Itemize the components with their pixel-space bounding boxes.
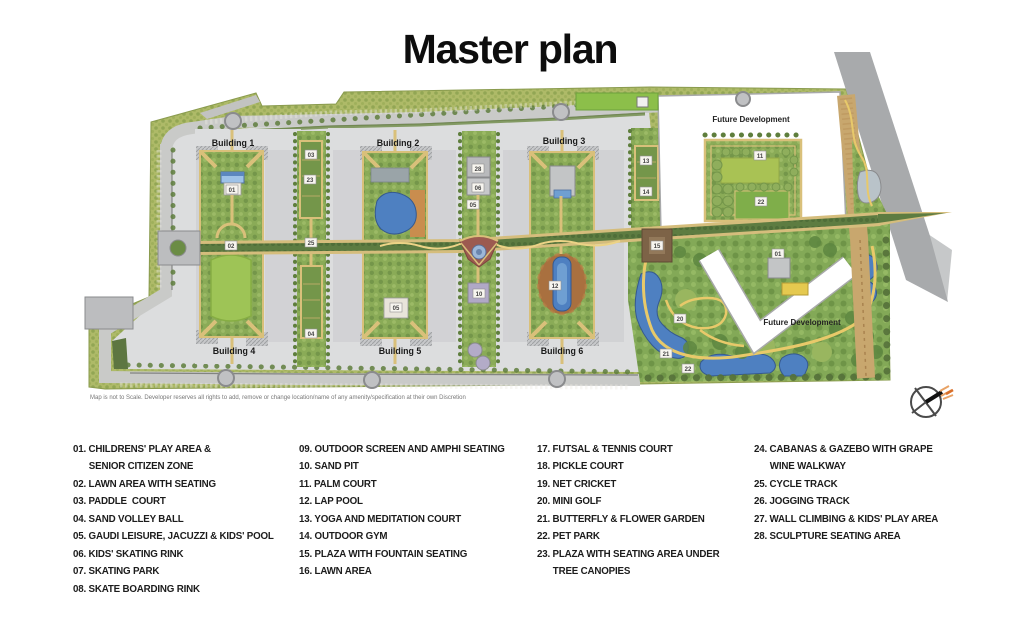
svg-text:15: 15 [654,244,661,250]
svg-text:Building 4: Building 4 [213,346,256,356]
svg-text:12: 12 [552,284,559,290]
svg-text:Building 3: Building 3 [543,136,586,146]
svg-text:20: 20 [677,317,684,323]
svg-text:21: 21 [663,352,670,358]
svg-text:02: 02 [228,244,235,250]
svg-text:10: 10 [476,292,483,298]
svg-text:05: 05 [470,203,477,209]
svg-text:Building 5: Building 5 [379,346,422,356]
svg-text:04: 04 [308,332,315,338]
svg-text:06: 06 [475,186,482,192]
svg-text:Future Development: Future Development [763,318,841,327]
svg-text:11: 11 [757,154,764,160]
svg-text:22: 22 [758,200,765,206]
svg-text:Building 6: Building 6 [541,346,584,356]
svg-text:05: 05 [393,306,400,312]
svg-text:01: 01 [229,188,236,194]
svg-text:22: 22 [685,367,692,373]
svg-text:Building 1: Building 1 [212,138,255,148]
svg-text:01: 01 [775,252,782,258]
svg-text:25: 25 [308,241,315,247]
svg-text:14: 14 [643,190,650,196]
svg-text:13: 13 [643,159,650,165]
svg-text:Building 2: Building 2 [377,138,420,148]
svg-text:Future Development: Future Development [712,115,790,124]
svg-text:23: 23 [307,178,314,184]
svg-text:28: 28 [475,167,482,173]
svg-text:03: 03 [308,153,315,159]
